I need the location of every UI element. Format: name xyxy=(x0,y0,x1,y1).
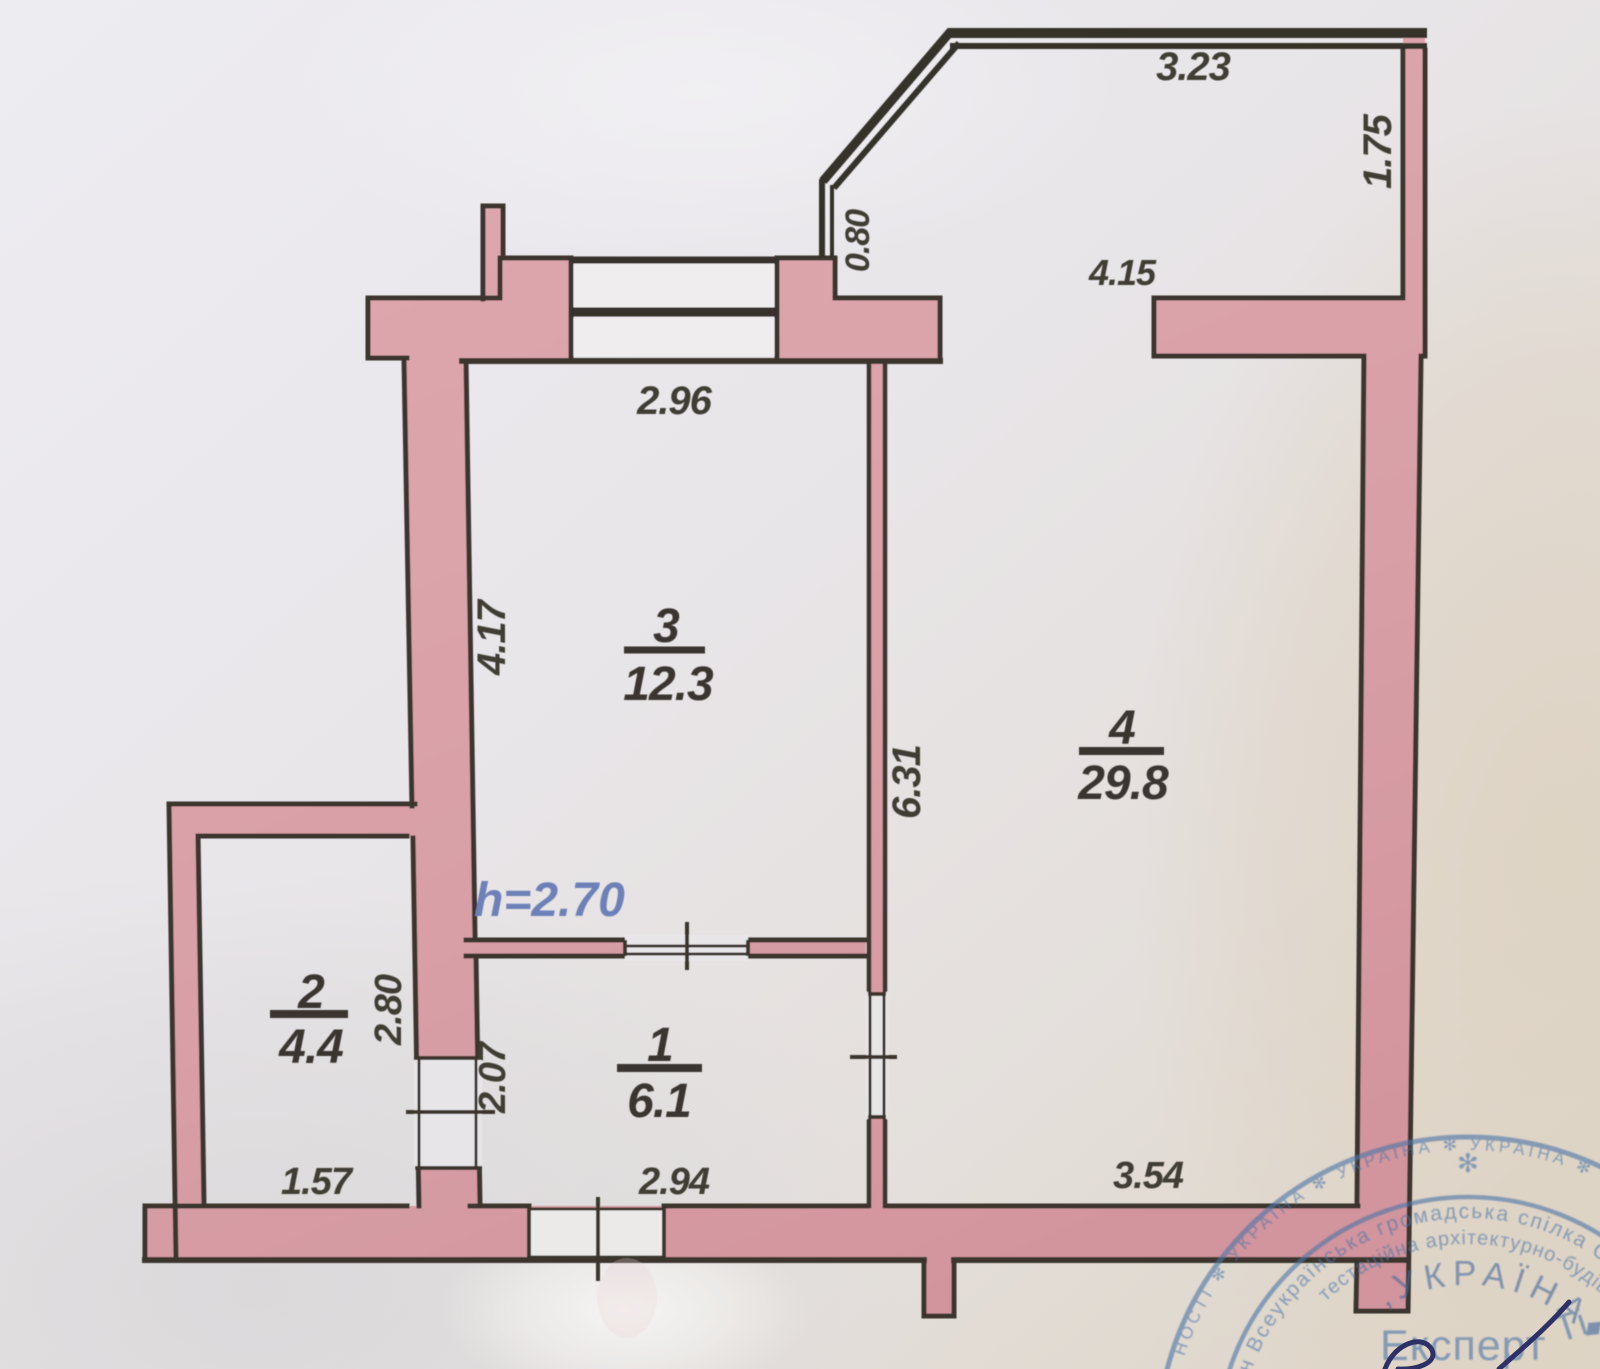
svg-text:3: 3 xyxy=(653,600,680,653)
svg-text:4.15: 4.15 xyxy=(1088,252,1157,293)
svg-text:2.94: 2.94 xyxy=(638,1161,710,1203)
svg-text:6.1: 6.1 xyxy=(627,1075,691,1128)
svg-text:2.96: 2.96 xyxy=(636,379,713,423)
svg-text:✻: ✻ xyxy=(1457,1148,1479,1178)
svg-text:3.54: 3.54 xyxy=(1113,1155,1184,1197)
svg-text:1.75: 1.75 xyxy=(1356,113,1400,189)
svg-text:12.3: 12.3 xyxy=(623,658,714,711)
svg-text:h=2.70: h=2.70 xyxy=(474,874,625,927)
svg-text:0.80: 0.80 xyxy=(839,209,877,272)
svg-text:6.31: 6.31 xyxy=(885,745,929,819)
svg-text:2.80: 2.80 xyxy=(368,974,410,1046)
svg-text:2.07: 2.07 xyxy=(472,1040,514,1114)
svg-text:3.23: 3.23 xyxy=(1156,45,1231,89)
svg-text:4.4: 4.4 xyxy=(278,1021,343,1074)
svg-text:29.8: 29.8 xyxy=(1077,757,1169,810)
svg-text:1.57: 1.57 xyxy=(281,1161,354,1203)
svg-text:4.17: 4.17 xyxy=(470,598,514,676)
